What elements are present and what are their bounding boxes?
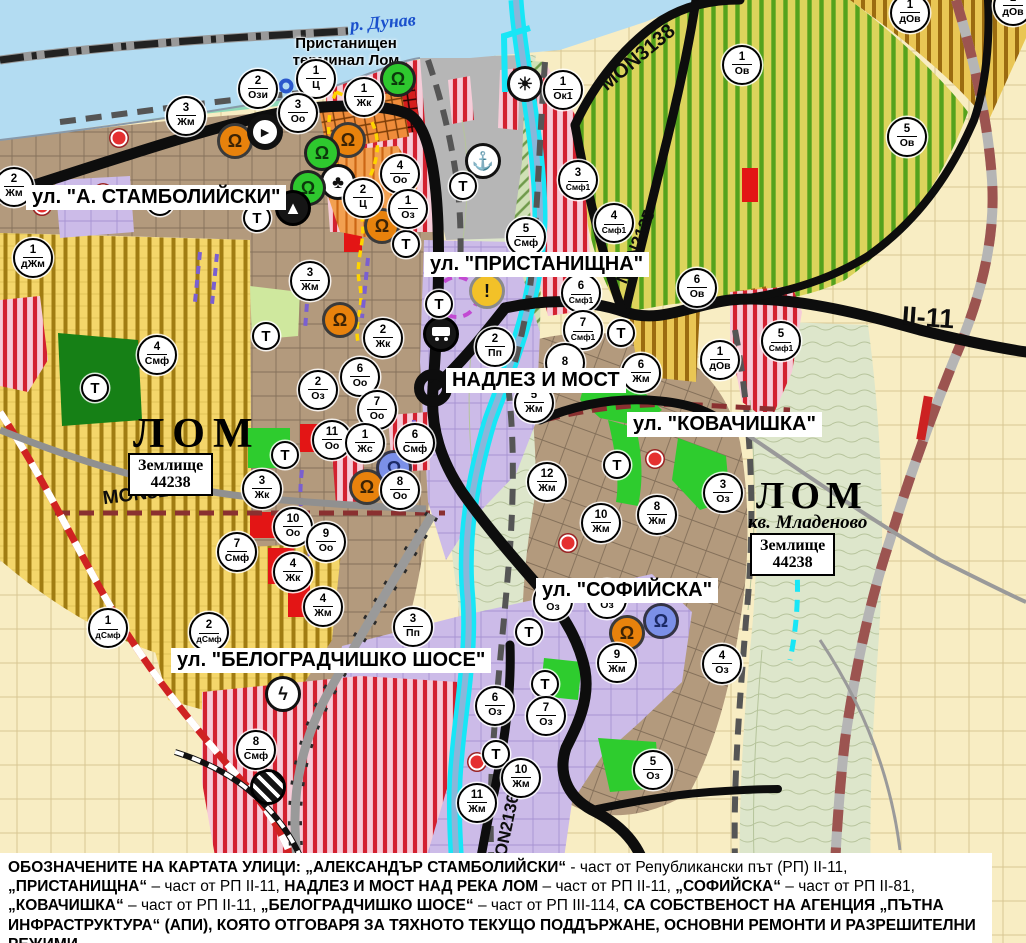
land-unit-number: 44238: [138, 474, 203, 491]
zone-marker: 3Пп: [393, 607, 433, 647]
zone-marker: 2Ози: [238, 69, 278, 109]
zone-marker: 9Жм: [597, 643, 637, 683]
caption-run: „СОФИЙСКА“: [675, 878, 781, 895]
zone-marker: 1дОв: [993, 0, 1026, 26]
zone-marker: 4Смф1: [594, 203, 634, 243]
zone-marker: 1дСмф: [88, 608, 128, 648]
zone-marker: 1Ов: [722, 45, 762, 85]
zone-marker: 4Смф: [137, 335, 177, 375]
zone-marker: 6Оз: [475, 686, 515, 726]
zone-marker: 7Оз: [526, 696, 566, 736]
port-terminal-line1: Пристанищен: [286, 35, 406, 52]
caption-run: „ПРИСТАНИЩНА“: [8, 878, 147, 895]
zone-marker: 2Оз: [298, 370, 338, 410]
monument-icon: Ω: [322, 302, 358, 338]
zone-marker: 1Ок1: [543, 70, 583, 110]
quarter-label-mladenovo: кв. Младеново: [748, 512, 867, 534]
zone-marker: 1Оз: [388, 189, 428, 229]
zone-marker: 11Жм: [457, 783, 497, 823]
zone-marker: 8Смф: [236, 730, 276, 770]
site-dot: [560, 535, 577, 552]
zone-marker: 1дОв: [890, 0, 930, 33]
zone-marker: 6Жм: [621, 353, 661, 393]
map-overlay: р. Дунав Пристанищен терминал Лом ЛОМ ЛО…: [0, 0, 1026, 943]
one-way-icon: ►: [247, 114, 283, 150]
transport-marker: Т: [252, 322, 280, 350]
land-unit-title: Землище: [760, 537, 825, 554]
zone-marker: 7Смф: [217, 532, 257, 572]
rail-crossing-icon: [250, 769, 286, 805]
land-unit-number: 44238: [760, 554, 825, 571]
zone-marker: 3Жм: [166, 96, 206, 136]
zone-marker: 8Оо: [380, 470, 420, 510]
zone-marker: 1Жс: [345, 423, 385, 463]
road-number-label: MON3138: [596, 20, 681, 96]
zone-marker: 12Жм: [527, 462, 567, 502]
zone-marker: 10Жм: [581, 503, 621, 543]
transport-marker: Т: [603, 451, 631, 479]
transport-marker: Т: [425, 290, 453, 318]
city-label-lom-west: ЛОМ: [133, 410, 261, 458]
street-label: ул. "СОФИЙСКА": [536, 578, 718, 603]
zone-marker: 6Смф: [395, 423, 435, 463]
zone-marker: 10Жм: [501, 758, 541, 798]
road-number-label: II-11: [901, 301, 956, 336]
zone-marker: 3Жм: [290, 261, 330, 301]
truck-icon: [423, 316, 459, 352]
zone-marker: 8Жм: [637, 495, 677, 535]
lightning-icon: ϟ: [265, 676, 301, 712]
map-stage: р. Дунав Пристанищен терминал Лом ЛОМ ЛО…: [0, 0, 1026, 943]
street-label: ул. "А. СТАМБОЛИЙСКИ": [26, 185, 286, 210]
site-dot: [111, 130, 128, 147]
zone-marker: 2Пп: [475, 327, 515, 367]
zone-marker: 1дОв: [700, 340, 740, 380]
caption-run: – част от РП II-81,: [781, 878, 915, 895]
caption-run: - част от Републикански път (РП) II-11,: [566, 859, 847, 876]
transport-marker: Т: [607, 319, 635, 347]
zone-marker: 3Оз: [703, 473, 743, 513]
transport-marker: Т: [515, 618, 543, 646]
street-label: ул. "ПРИСТАНИЩНА": [424, 252, 649, 277]
site-dot: [647, 451, 664, 468]
transport-marker: Т: [271, 441, 299, 469]
transport-marker: Т: [531, 670, 559, 698]
zone-marker: 6Ов: [677, 268, 717, 308]
zone-marker: 5Смф1: [761, 321, 801, 361]
monument-icon: Ω: [643, 603, 679, 639]
zone-marker: 6Смф1: [561, 273, 601, 313]
land-unit-box-east: Землище 44238: [750, 533, 835, 576]
zone-marker: 1Жк: [344, 77, 384, 117]
land-unit-title: Землище: [138, 457, 203, 474]
zone-marker: 3Оо: [278, 93, 318, 133]
street-label: НАДЛЕЗ И МОСТ: [446, 368, 626, 393]
sun-icon: ☀: [507, 66, 543, 102]
transport-marker: Т: [449, 172, 477, 200]
zone-marker: 3Жк: [242, 469, 282, 509]
street-label: ул. "КОВАЧИШКА": [627, 412, 822, 437]
zone-marker: 5Оз: [633, 750, 673, 790]
caption-run: „КОВАЧИШКА“: [8, 897, 124, 914]
land-unit-box-west: Землище 44238: [128, 453, 213, 496]
zone-marker: 4Жм: [303, 587, 343, 627]
zone-marker: 4Оо: [380, 154, 420, 194]
caption-run: „БЕЛОГРАДЧИШКО ШОСЕ“: [261, 897, 474, 914]
zone-marker: 4Жк: [273, 552, 313, 592]
caption-run: – част от РП II-11,: [124, 897, 261, 914]
transport-marker: Т: [392, 230, 420, 258]
zone-marker: 3Смф1: [558, 160, 598, 200]
zone-marker: 2Ц: [343, 178, 383, 218]
caption-run: – част от РП III-114,: [474, 897, 624, 914]
caption-run: ОБОЗНАЧЕНИТЕ НА КАРТАТА УЛИЦИ: „АЛЕКСАНД…: [8, 859, 566, 876]
zone-marker: 4Оз: [702, 644, 742, 684]
site-ring: [279, 79, 294, 94]
caption-run: НАДЛЕЗ И МОСТ НАД РЕКА ЛОМ: [284, 878, 538, 895]
monument-icon: Ω: [380, 61, 416, 97]
transport-marker: Т: [81, 374, 109, 402]
river-label: р. Дунав: [349, 9, 416, 36]
zone-marker: 5Ов: [887, 117, 927, 157]
warning-icon: !: [469, 273, 505, 309]
zone-marker: 1дЖм: [13, 238, 53, 278]
zone-marker: 2дСмф: [189, 612, 229, 652]
caption-run: – част от РП II-11,: [147, 878, 284, 895]
street-label: ул. "БЕЛОГРАДЧИШКО ШОСЕ": [171, 648, 491, 673]
caption-run: – част от РП II-11,: [538, 878, 675, 895]
caption: ОБОЗНАЧЕНИТЕ НА КАРТАТА УЛИЦИ: „АЛЕКСАНД…: [0, 853, 992, 943]
zone-marker: 2Жк: [363, 318, 403, 358]
zone-marker: 9Оо: [306, 522, 346, 562]
zone-marker: 5Смф: [506, 217, 546, 257]
